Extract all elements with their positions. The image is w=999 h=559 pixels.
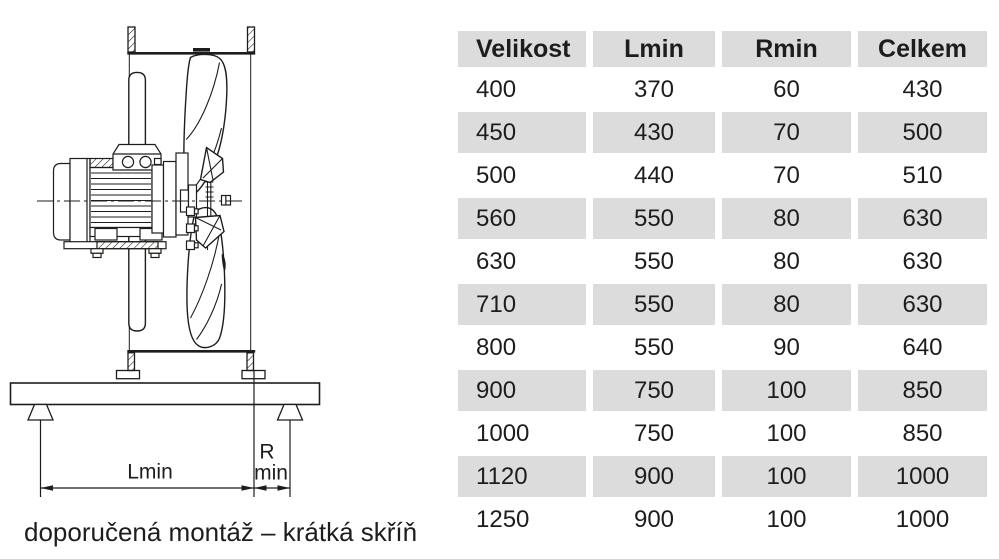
motor-foot-left [95,229,117,241]
dimensions-table: Velikost Lmin Rmin Celkem 40037060430450… [451,29,994,542]
hub-bolt-2 [187,224,199,233]
table-row: 900750100850 [458,370,987,411]
cell-velikost: 900 [458,370,586,411]
table-row: 63055080630 [458,241,987,282]
housing-mounting-brackets [117,353,266,379]
table-row: 12509001001000 [458,499,987,540]
table-row: 11209001001000 [458,456,987,497]
table-row: 80055090640 [458,327,987,368]
cell-value: 440 [593,155,715,196]
cell-value: 850 [858,370,987,411]
arrowhead-rmin-left [254,485,267,490]
bracket-strip-right [247,353,254,371]
col-header-celkem: Celkem [858,31,987,67]
cell-value: 640 [858,327,987,368]
motor-fin-hatch-block [90,159,113,168]
cell-value: 630 [858,198,987,239]
table-body: 4003706043045043070500500440705105605508… [458,69,987,540]
housing-top-detail [193,48,210,52]
cell-value: 100 [722,456,851,497]
base-plate [11,383,320,405]
shaft-end-nut [222,196,231,206]
col-header-lmin: Lmin [593,31,715,67]
hub-bolt-3 [187,241,199,250]
cell-value: 630 [858,284,987,325]
cell-value: 70 [722,112,851,153]
bracket-foot-left [117,371,140,379]
cell-value: 850 [858,413,987,454]
dim-length-label: Lmin [127,461,173,484]
cell-value: 430 [858,69,987,110]
fan-mounting-diagram: Lmin R min [0,0,455,559]
hub-spline-ticks [206,182,214,197]
cell-value: 80 [722,198,851,239]
support-foot-left [28,405,53,421]
arrowhead-rmin-right [278,485,291,490]
cell-velikost: 710 [458,284,586,325]
cell-velikost: 1250 [458,499,586,540]
cell-value: 60 [722,69,851,110]
table-row: 1000750100850 [458,413,987,454]
motor-body [90,168,152,228]
cable-gland-right [140,156,151,167]
catalog-page: Lmin R min doporučená montáž – krátká sk… [0,0,999,559]
cell-value: 70 [722,155,851,196]
cell-value: 550 [593,284,715,325]
cell-value: 80 [722,284,851,325]
dim-radius-sub-label: min [254,462,288,485]
support-foot-right [278,405,303,421]
cell-velikost: 560 [458,198,586,239]
cell-value: 100 [722,499,851,540]
cell-value: 500 [858,112,987,153]
cell-value: 900 [593,456,715,497]
cell-value: 370 [593,69,715,110]
cell-value: 430 [593,112,715,153]
terminal-box-detail [155,159,162,165]
arrowhead-lmin-left [41,485,54,490]
cell-value: 630 [858,241,987,282]
cell-value: 100 [722,370,851,411]
arrowhead-lmin-right [242,485,255,490]
housing-wall-cut-right [248,27,255,52]
table-header-row: Velikost Lmin Rmin Celkem [458,31,987,67]
table-row: 56055080630 [458,198,987,239]
motor-foot-bolt-left [91,249,103,258]
cell-velikost: 400 [458,69,586,110]
table-row: 71055080630 [458,284,987,325]
cell-value: 80 [722,241,851,282]
diagram-caption: doporučená montáž – krátká skříň [24,517,417,548]
dim-radius-label: R [259,441,274,464]
table-row: 45043070500 [458,112,987,153]
cell-value: 90 [722,327,851,368]
col-header-velikost: Velikost [458,31,586,67]
cell-velikost: 1000 [458,413,586,454]
cell-value: 1000 [858,456,987,497]
motor-mount-rail-hatch [97,242,158,249]
table-row: 40037060430 [458,69,987,110]
table-row: 50044070510 [458,155,987,196]
cell-value: 550 [593,241,715,282]
cell-velikost: 500 [458,155,586,196]
motor-flange-2 [164,162,177,238]
cell-value: 510 [858,155,987,196]
cell-value: 100 [722,413,851,454]
cable-gland-left [122,156,133,167]
cell-value: 550 [593,327,715,368]
motor-flange-1 [152,165,164,233]
cell-velikost: 450 [458,112,586,153]
bracket-strip-left [128,353,135,371]
cell-value: 1000 [858,499,987,540]
hub-bolt-1 [187,207,199,216]
cell-velikost: 800 [458,327,586,368]
motor-foot-bolt-right [149,249,161,258]
cell-velikost: 630 [458,241,586,282]
motor-end-cap [54,164,71,241]
cell-value: 750 [593,370,715,411]
housing-wall-cut-left [128,27,135,52]
cell-value: 900 [593,499,715,540]
cell-velikost: 1120 [458,456,586,497]
col-header-rmin: Rmin [722,31,851,67]
cell-value: 550 [593,198,715,239]
cell-value: 750 [593,413,715,454]
